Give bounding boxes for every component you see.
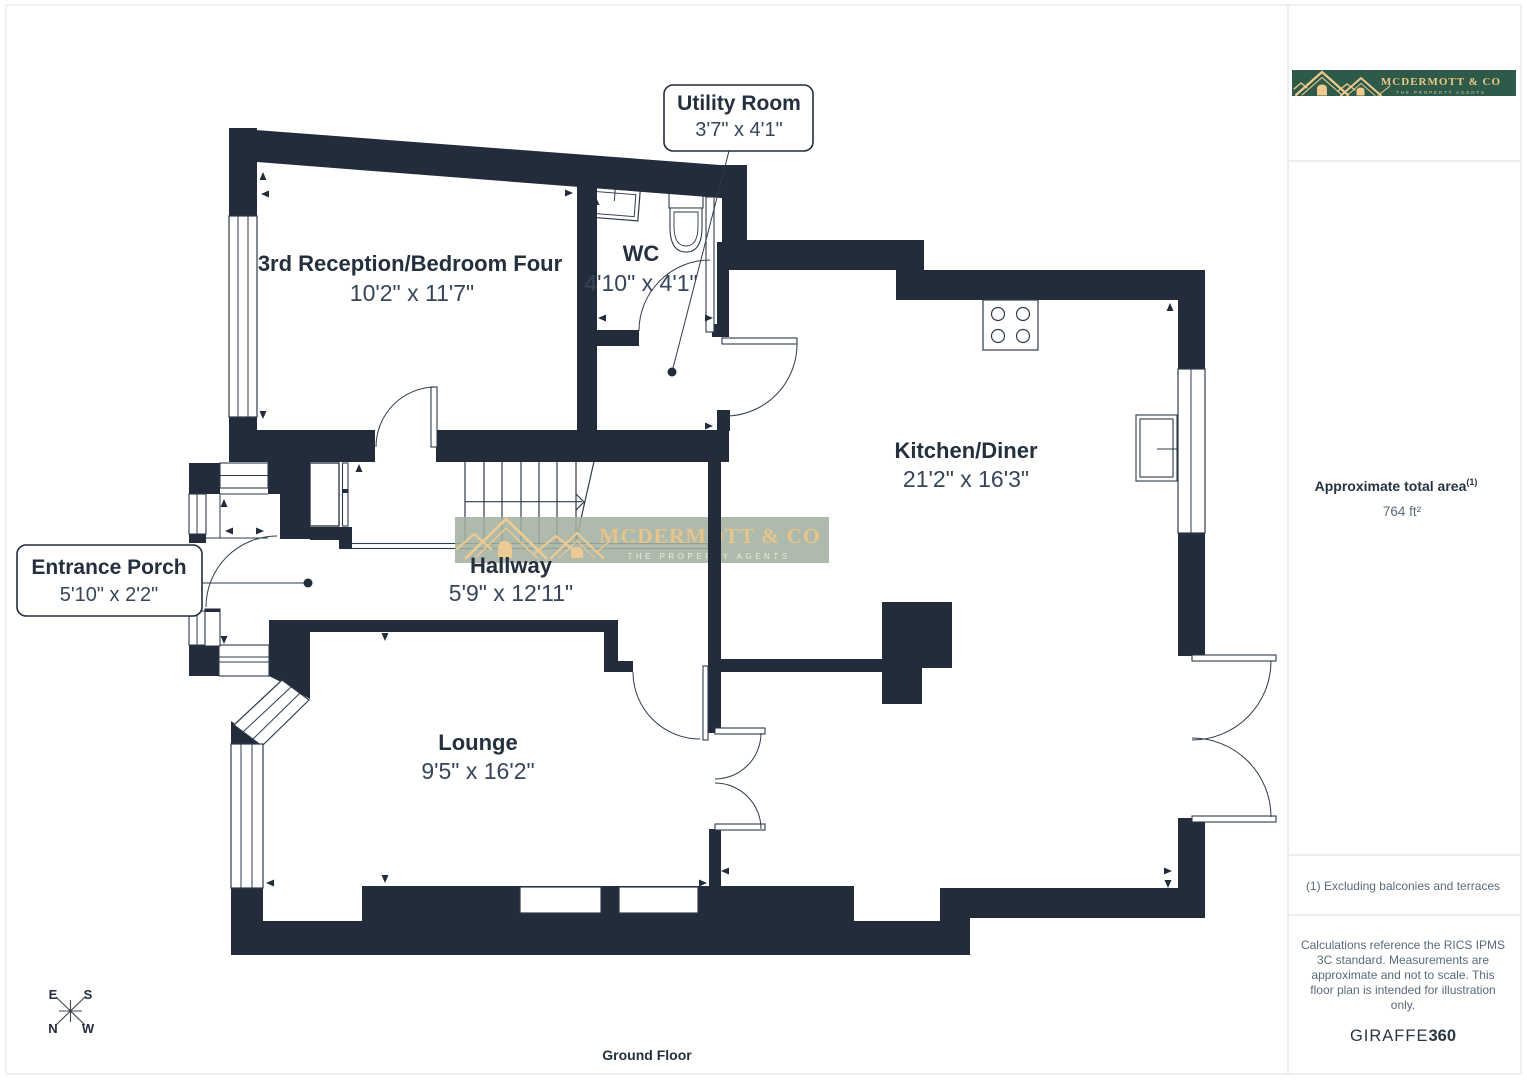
- svg-text:E: E: [49, 987, 58, 1002]
- svg-text:10'2" x 11'7": 10'2" x 11'7": [350, 280, 474, 306]
- svg-text:Ground Floor: Ground Floor: [602, 1047, 692, 1063]
- svg-text:S: S: [84, 987, 93, 1002]
- svg-text:5'9" x 12'11": 5'9" x 12'11": [449, 580, 573, 606]
- svg-text:Utility Room: Utility Room: [677, 92, 801, 115]
- svg-text:GIRAFFE360: GIRAFFE360: [1350, 1027, 1456, 1045]
- svg-text:9'5" x 16'2": 9'5" x 16'2": [421, 758, 534, 784]
- svg-text:3C standard. Measurements are: 3C standard. Measurements are: [1317, 953, 1489, 967]
- svg-text:floor plan is intended for ill: floor plan is intended for illustration: [1310, 983, 1495, 997]
- svg-text:only.: only.: [1391, 998, 1415, 1012]
- svg-text:W: W: [82, 1021, 95, 1036]
- svg-text:764 ft²: 764 ft²: [1383, 504, 1422, 519]
- svg-text:MCDERMOTT & CO: MCDERMOTT & CO: [1381, 76, 1501, 88]
- svg-text:Hallway: Hallway: [470, 553, 553, 578]
- svg-text:N: N: [48, 1021, 57, 1036]
- svg-text:(1) Excluding balconies and te: (1) Excluding balconies and terraces: [1306, 879, 1500, 893]
- svg-text:4'10" x 4'1": 4'10" x 4'1": [584, 270, 697, 296]
- svg-text:Calculations reference the RIC: Calculations reference the RICS IPMS: [1301, 938, 1505, 952]
- svg-text:Entrance Porch: Entrance Porch: [31, 556, 186, 579]
- svg-text:Approximate total area(1): Approximate total area(1): [1315, 477, 1478, 494]
- svg-text:Lounge: Lounge: [438, 730, 517, 755]
- svg-text:21'2" x 16'3": 21'2" x 16'3": [903, 466, 1029, 492]
- svg-text:approximate and not to scale.: approximate and not to scale. This: [1311, 968, 1494, 982]
- svg-text:WC: WC: [623, 241, 660, 266]
- svg-text:THE PROPERTY AGENTS: THE PROPERTY AGENTS: [1396, 90, 1486, 95]
- svg-text:3rd Reception/Bedroom Four: 3rd Reception/Bedroom Four: [258, 251, 563, 276]
- svg-text:3'7" x 4'1": 3'7" x 4'1": [695, 119, 782, 141]
- svg-text:5'10" x 2'2": 5'10" x 2'2": [60, 584, 159, 606]
- svg-text:Kitchen/Diner: Kitchen/Diner: [894, 438, 1037, 463]
